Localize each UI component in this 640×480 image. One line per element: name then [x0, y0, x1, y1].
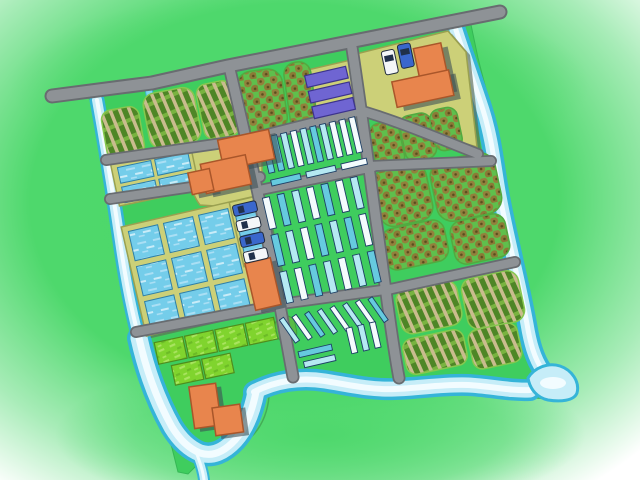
pond-cell [163, 217, 199, 253]
pond-cell [136, 260, 172, 296]
solar-array [305, 66, 356, 118]
building [188, 168, 214, 194]
site-plan-map [0, 0, 640, 480]
building [212, 404, 244, 436]
pond-cell [199, 209, 235, 245]
map-canvas [0, 0, 640, 480]
row-crop-plot [141, 86, 203, 151]
pond-cell [128, 225, 164, 261]
pond-cell [207, 244, 243, 280]
pond-cell [172, 252, 208, 288]
river-pond-highlight [540, 377, 566, 389]
cross-road [373, 161, 491, 166]
